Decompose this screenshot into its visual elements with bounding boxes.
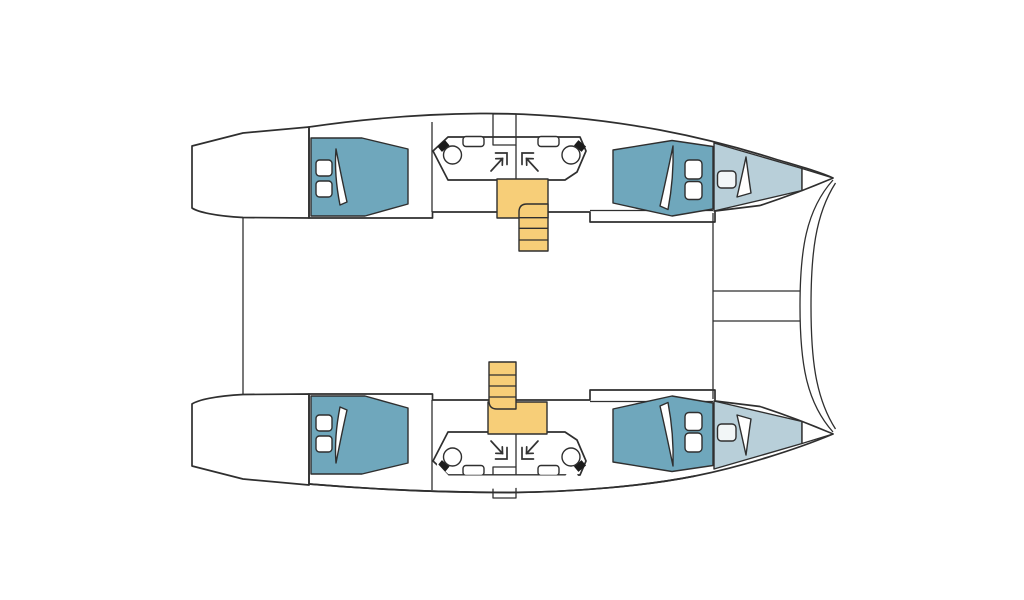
port-stair-steps: [519, 204, 548, 251]
port-stairs: [497, 179, 548, 251]
starboard-hull-interior: [311, 396, 833, 498]
catamaran-floor-plan: [0, 0, 1024, 600]
starboard-stairs: [488, 362, 547, 434]
bow-trampoline: [713, 180, 836, 432]
trampoline-edge-outer: [811, 183, 836, 429]
aft-toilet: [444, 146, 462, 164]
fwd-sink: [538, 137, 559, 147]
floor-plan-canvas: [0, 0, 1024, 600]
aft-sink: [463, 137, 484, 147]
fwd-shower-corner-icon: [522, 153, 538, 171]
port-stern-platform: [192, 127, 309, 218]
fwd-toilet: [562, 146, 580, 164]
aft-bed-pillow-2: [316, 181, 332, 197]
trampoline-edge-inner: [800, 180, 833, 432]
forward-bed-pillow-1: [685, 160, 702, 179]
aft-shower-corner-icon: [491, 153, 507, 171]
stern-platforms: [192, 127, 309, 485]
aft-bed: [311, 138, 408, 216]
aft-bed-pillow-1: [316, 160, 332, 176]
port-hull-interior: [311, 114, 833, 216]
companionway-gap: [493, 114, 516, 145]
forward-bed-pillow-2: [685, 182, 702, 200]
starboard-stern-platform: [192, 394, 309, 485]
bow-hatch: [718, 171, 737, 188]
